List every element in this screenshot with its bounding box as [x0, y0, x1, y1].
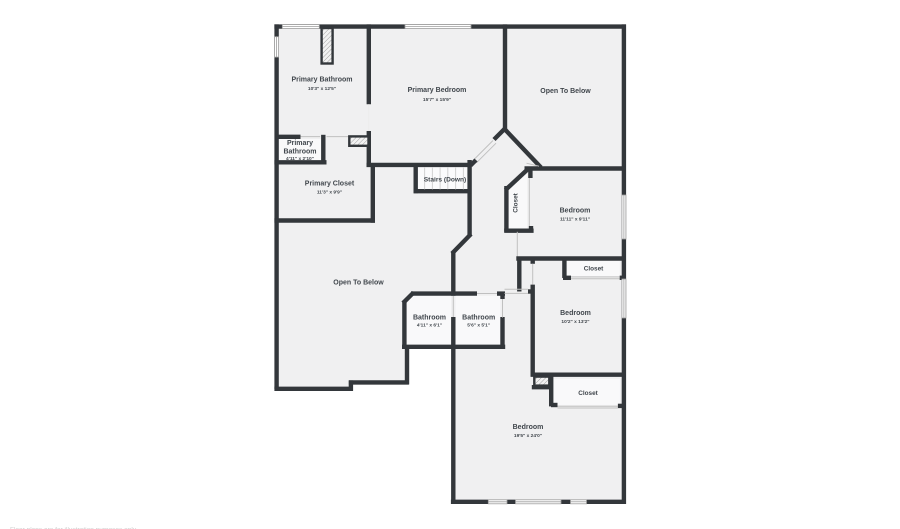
- svg-text:Closet: Closet: [578, 390, 598, 397]
- svg-text:Bedroom: Bedroom: [560, 310, 591, 317]
- svg-text:Closet: Closet: [584, 266, 604, 273]
- svg-text:Bedroom: Bedroom: [513, 424, 544, 431]
- svg-text:Bathroom: Bathroom: [462, 315, 495, 322]
- svg-text:Primary Closet: Primary Closet: [305, 181, 355, 188]
- svg-text:Stairs (Down): Stairs (Down): [424, 177, 467, 184]
- svg-text:Primary Bathroom: Primary Bathroom: [291, 77, 352, 84]
- svg-text:Primary Bedroom: Primary Bedroom: [408, 87, 467, 94]
- svg-text:10'3" x 12'5": 10'3" x 12'5": [308, 86, 336, 92]
- svg-text:19'5" x 24'0": 19'5" x 24'0": [514, 433, 542, 439]
- svg-text:15'7" x 15'9": 15'7" x 15'9": [423, 97, 451, 103]
- svg-text:Bedroom: Bedroom: [560, 208, 591, 215]
- svg-text:Open To Below: Open To Below: [540, 88, 591, 95]
- svg-text:Bathroom: Bathroom: [283, 149, 316, 156]
- svg-text:Bathroom: Bathroom: [413, 315, 446, 322]
- svg-text:4'11" x 2'10": 4'11" x 2'10": [286, 156, 314, 162]
- svg-text:Closet: Closet: [513, 192, 520, 212]
- svg-text:Primary: Primary: [287, 140, 313, 147]
- svg-text:11'3" x 9'9": 11'3" x 9'9": [317, 190, 342, 196]
- svg-text:4'11" x 6'1": 4'11" x 6'1": [417, 323, 442, 329]
- svg-text:Open To Below: Open To Below: [333, 280, 384, 287]
- svg-text:10'2" x 13'2": 10'2" x 13'2": [561, 319, 589, 325]
- svg-text:5'6" x 5'1": 5'6" x 5'1": [467, 323, 490, 329]
- svg-text:11'11" x 9'11": 11'11" x 9'11": [560, 217, 590, 223]
